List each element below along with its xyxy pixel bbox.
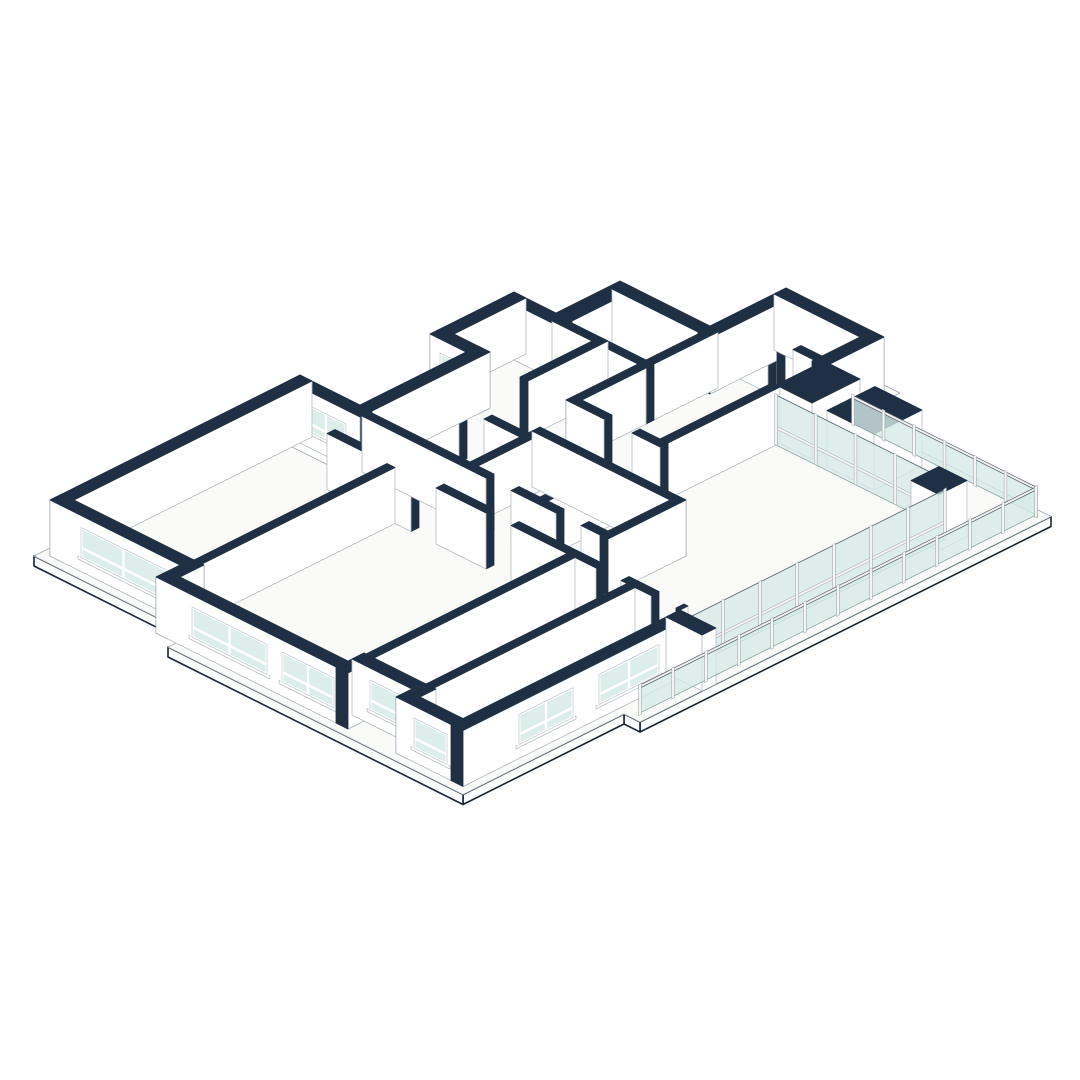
glass-post bbox=[1004, 470, 1007, 502]
glass-post bbox=[913, 424, 916, 456]
glass-post bbox=[672, 667, 675, 699]
glass-post bbox=[882, 409, 885, 441]
glass-post bbox=[775, 393, 778, 445]
wall-face-sw bbox=[520, 377, 528, 437]
wall-face-sw bbox=[451, 725, 463, 787]
glass-post bbox=[804, 601, 807, 633]
glass-post bbox=[894, 453, 897, 505]
glass-post bbox=[705, 650, 708, 682]
glass-post bbox=[974, 455, 977, 487]
glass-post bbox=[771, 617, 774, 649]
isometric-floorplan-page bbox=[0, 0, 1080, 1080]
glass-post bbox=[1035, 485, 1038, 517]
glass-post bbox=[854, 433, 857, 485]
wall-face-se bbox=[486, 509, 494, 569]
glass-post bbox=[639, 683, 642, 715]
glass-post bbox=[903, 551, 906, 583]
glass-post bbox=[1002, 502, 1005, 534]
isometric-floorplan-figure bbox=[0, 0, 1080, 1080]
wall-face-se bbox=[646, 364, 654, 424]
glass-post bbox=[870, 568, 873, 600]
glass-post bbox=[943, 440, 946, 472]
glass-post bbox=[936, 535, 939, 567]
glass-post bbox=[814, 413, 817, 465]
glass-post bbox=[837, 584, 840, 616]
glass-post bbox=[738, 634, 741, 666]
glass-post bbox=[969, 518, 972, 550]
wall-face-sw bbox=[336, 667, 348, 729]
glass-post bbox=[852, 394, 855, 426]
